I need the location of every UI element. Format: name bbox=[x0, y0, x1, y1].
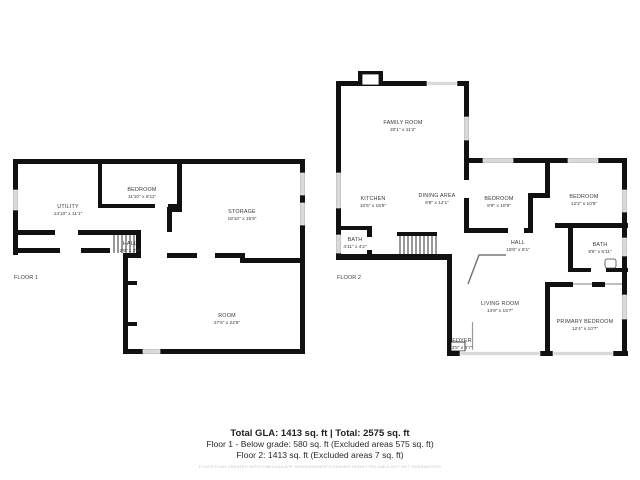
area-summary: Total GLA: 1413 sq. ft | Total: 2575 sq.… bbox=[0, 428, 640, 469]
floor-2-stairs bbox=[400, 236, 436, 254]
room-dims: 2'8" x 3'4" bbox=[120, 248, 141, 254]
floorplan-drawing: UTILITY 14'10" x 11'1" BEDROOM 11'10" x … bbox=[0, 0, 640, 480]
room-dims: 9'8" x 12'1" bbox=[425, 200, 449, 206]
room-label: BEDROOM bbox=[127, 187, 157, 193]
floor-1-title: FLOOR 1 bbox=[14, 275, 38, 281]
stair-railing bbox=[468, 255, 506, 284]
floor-2-area-line: Floor 2: 1413 sq. ft (Excluded areas 7 s… bbox=[0, 450, 640, 461]
floor-2-plan: FAMILY ROOM 20'1" x 11'2" KITCHEN 10'5" … bbox=[336, 71, 628, 356]
room-dims: 11'10" x 8'11" bbox=[128, 194, 157, 200]
floor-2-title: FLOOR 2 bbox=[337, 275, 361, 281]
room-label: UTILITY bbox=[57, 204, 79, 210]
room-dims: 8'6" x 6'11" bbox=[588, 249, 612, 255]
room-label: BEDROOM bbox=[484, 196, 514, 202]
room-label: DINING AREA bbox=[419, 193, 456, 199]
room-dims: 14'10" x 11'1" bbox=[54, 211, 83, 217]
room-label: LIVING ROOM bbox=[481, 301, 519, 307]
room-dims: 12'4" x 10'7" bbox=[572, 326, 599, 332]
room-label: FOYER bbox=[452, 338, 472, 344]
room-dims: 9'9" x 10'9" bbox=[487, 203, 511, 209]
room-label: PRIMARY BEDROOM bbox=[557, 319, 614, 325]
room-dims: 27'6" x 22'6" bbox=[214, 320, 241, 326]
room-dims: 3'5" x 4'7" bbox=[452, 345, 473, 351]
room-dims: 20'1" x 11'2" bbox=[390, 127, 416, 133]
toilet-fixture bbox=[605, 259, 616, 268]
room-label: KITCHEN bbox=[360, 196, 385, 202]
disclaimer-line: FLOOR PLAN CREATED WITH CUBICASA APP. ME… bbox=[0, 464, 640, 469]
room-label: BATH bbox=[348, 237, 363, 243]
room-label: BATH bbox=[593, 242, 608, 248]
room-label: ROOM bbox=[218, 313, 236, 319]
room-dims: 10'5" x 15'5" bbox=[360, 203, 387, 209]
room-dims: 14'9" x 15'7" bbox=[487, 308, 514, 314]
room-label: BEDROOM bbox=[569, 194, 599, 200]
room-label: STORAGE bbox=[228, 209, 256, 215]
room-label: FAMILY ROOM bbox=[383, 120, 422, 126]
room-label: HALL bbox=[511, 240, 525, 246]
room-label: HALL bbox=[123, 241, 137, 247]
floor-2-walls bbox=[336, 71, 628, 356]
floor-1-area-line: Floor 1 - Below grade: 580 sq. ft (Exclu… bbox=[0, 439, 640, 450]
room-dims: 18'6" x 8'1" bbox=[506, 247, 530, 253]
floor-2-windows bbox=[337, 82, 627, 356]
floor-1-plan: UTILITY 14'10" x 11'1" BEDROOM 11'10" x … bbox=[13, 159, 305, 354]
fireplace-box bbox=[362, 74, 379, 85]
floorplan-page: UTILITY 14'10" x 11'1" BEDROOM 11'10" x … bbox=[0, 0, 640, 480]
total-gla-line: Total GLA: 1413 sq. ft | Total: 2575 sq.… bbox=[0, 428, 640, 439]
room-dims: 12'2" x 10'9" bbox=[571, 201, 598, 207]
floor-1-windows bbox=[14, 173, 305, 354]
room-dims: 18'10" x 15'9" bbox=[228, 216, 257, 222]
floor-1-walls bbox=[13, 159, 305, 354]
room-dims: 4'11" x 4'2" bbox=[343, 244, 367, 250]
